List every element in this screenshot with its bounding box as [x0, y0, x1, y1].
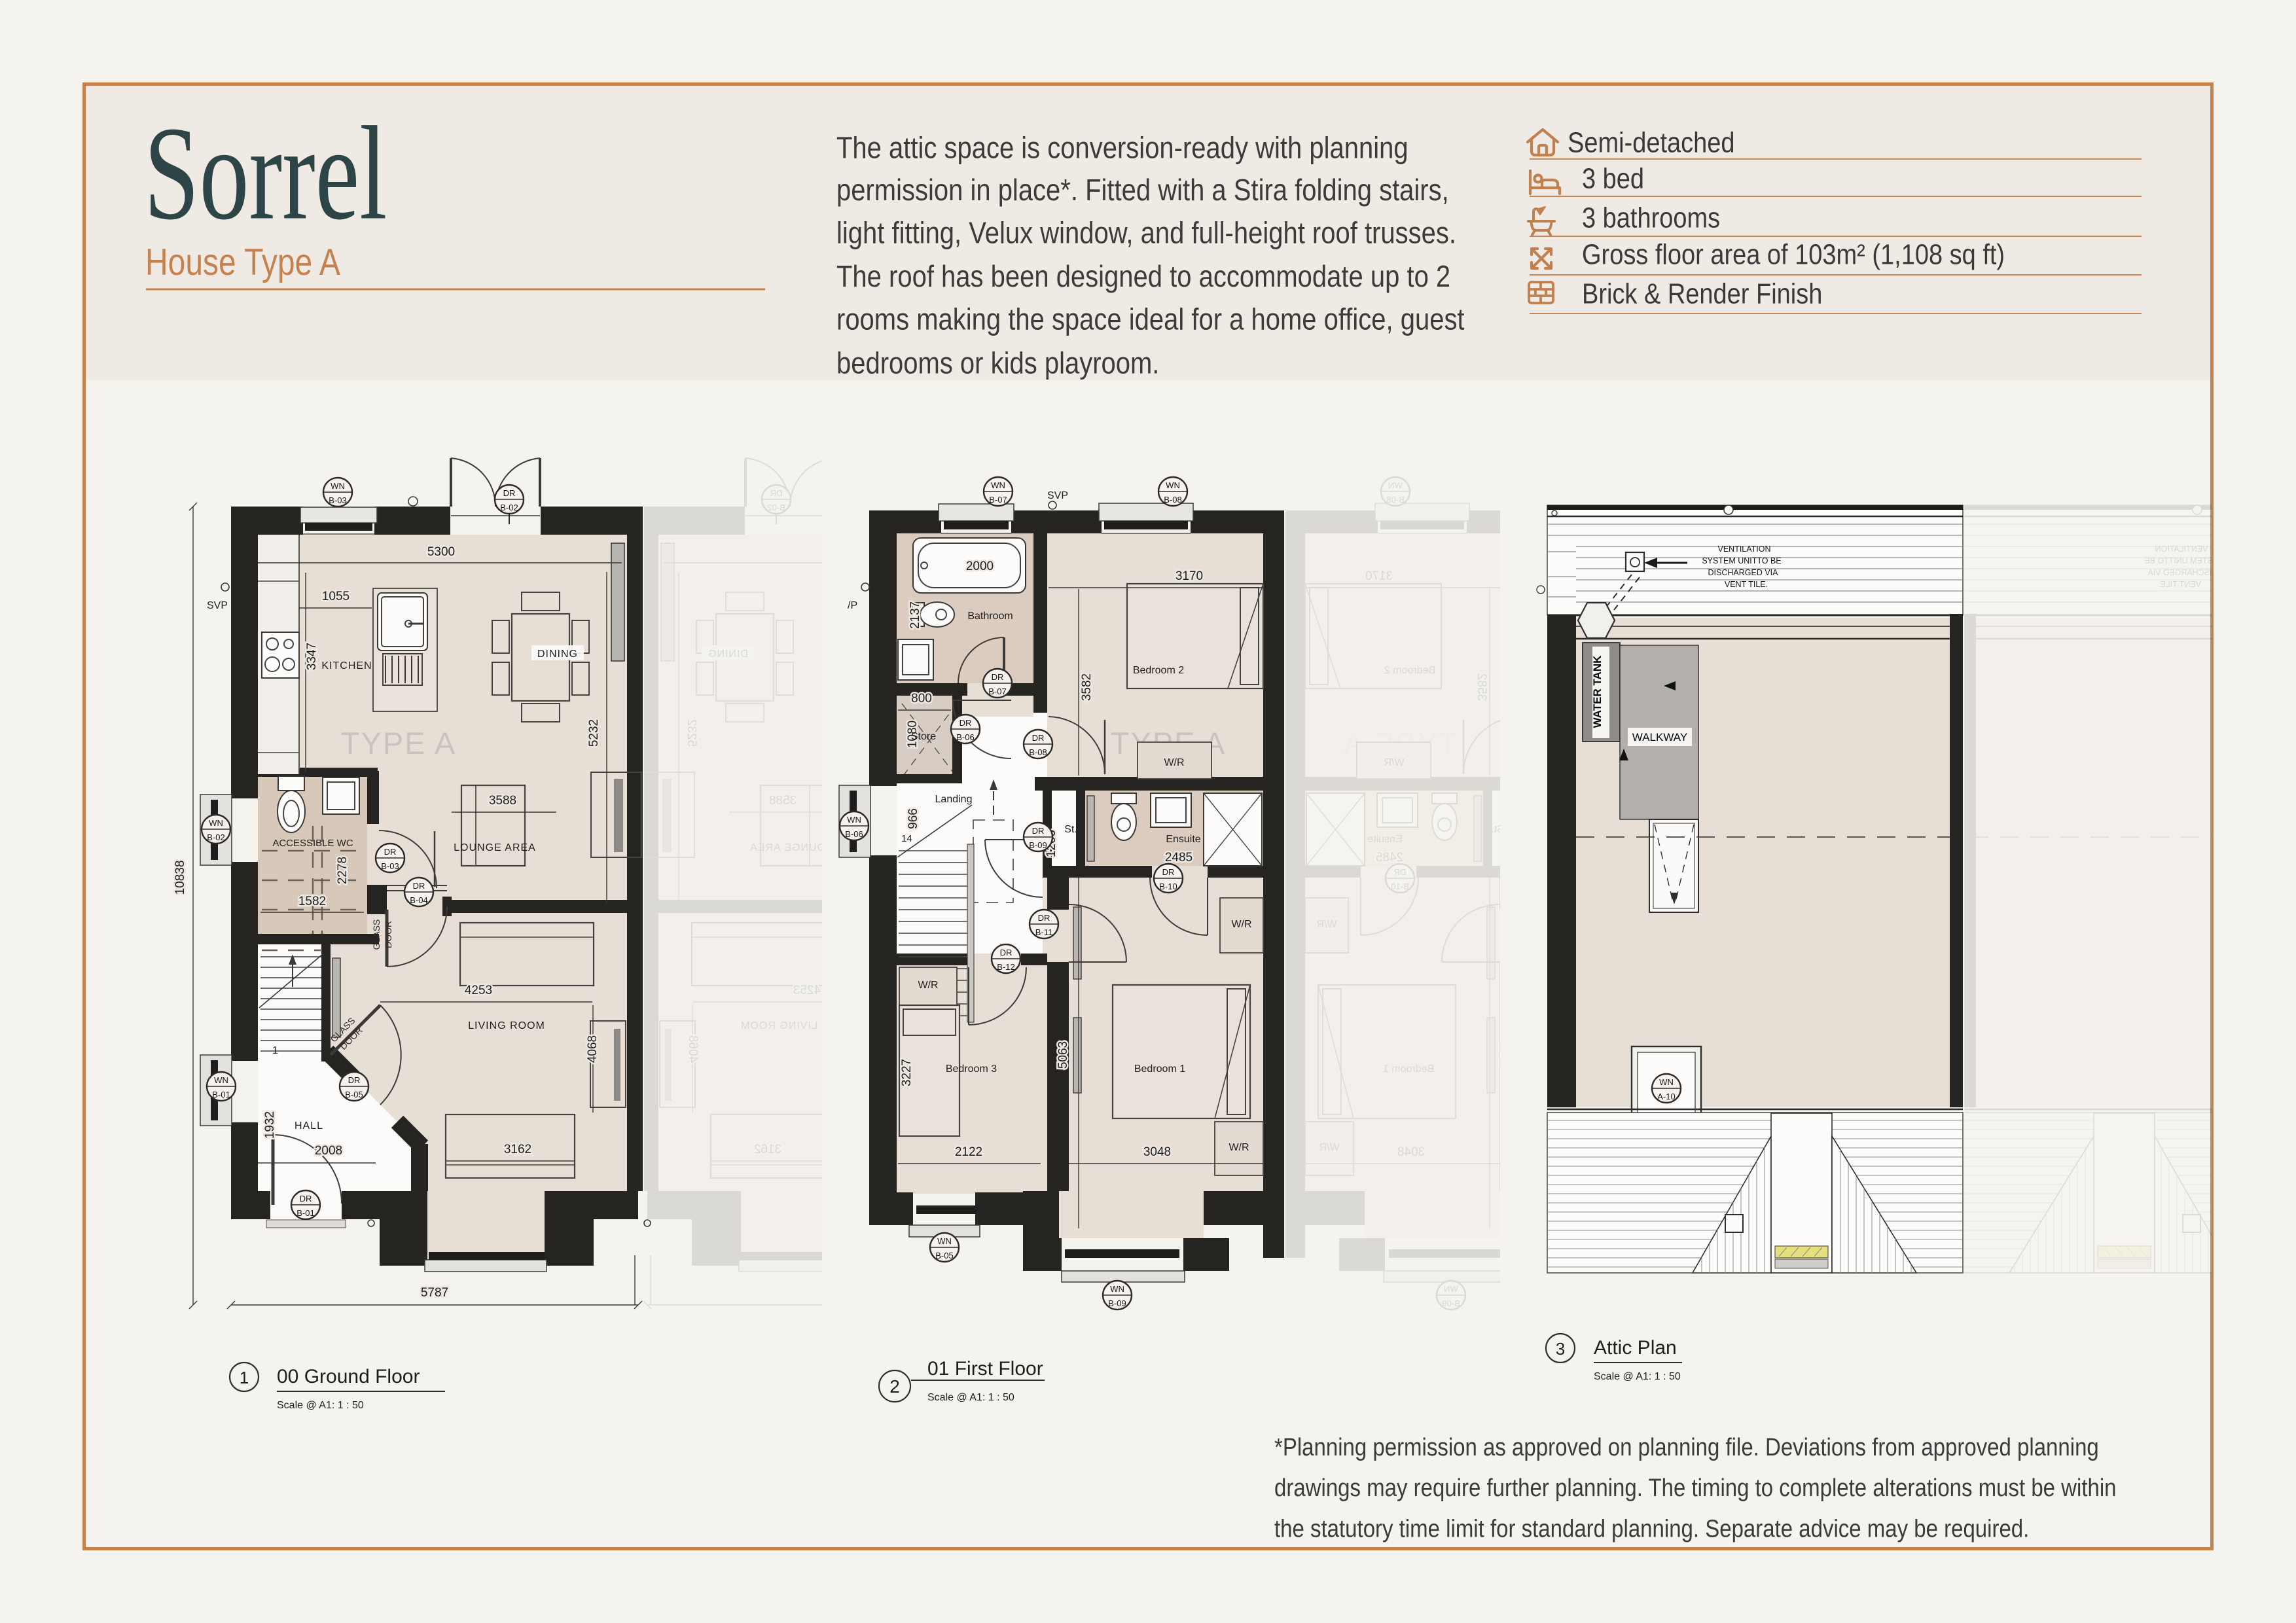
svg-text:DR: DR: [960, 718, 972, 728]
svg-text:B-05: B-05: [345, 1090, 363, 1099]
svg-text:2278: 2278: [336, 857, 350, 884]
svg-text:DR: DR: [384, 847, 397, 857]
svg-text:1932: 1932: [263, 1111, 277, 1139]
svg-text:DR: DR: [1162, 867, 1175, 877]
svg-text:WN: WN: [331, 481, 345, 491]
svg-text:Bedroom 1: Bedroom 1: [1134, 1063, 1185, 1075]
svg-text:DOOR: DOOR: [383, 921, 393, 948]
svg-text:KITCHEN: KITCHEN: [321, 660, 372, 671]
svg-text:10838: 10838: [173, 861, 187, 895]
svg-text:WN: WN: [847, 815, 861, 825]
svg-text:DR: DR: [413, 881, 425, 891]
svg-text:drawings may require further p: drawings may require further planning. T…: [1274, 1474, 2117, 1502]
svg-text:3048: 3048: [1143, 1145, 1171, 1159]
svg-text:3162: 3162: [504, 1143, 531, 1156]
svg-text:The attic space is conversion-: The attic space is conversion-ready with…: [836, 132, 1408, 165]
svg-text:DR: DR: [503, 488, 516, 498]
svg-text:WALKWAY: WALKWAY: [1632, 731, 1687, 743]
svg-text:rooms making the space ideal f: rooms making the space ideal for a home …: [836, 303, 1465, 336]
svg-text:4253: 4253: [465, 984, 492, 997]
svg-text:DR: DR: [348, 1075, 361, 1085]
svg-text:B-01: B-01: [212, 1090, 230, 1099]
svg-text:DR: DR: [1000, 948, 1013, 957]
svg-text:LOUNGE AREA: LOUNGE AREA: [454, 842, 536, 853]
svg-text:5787: 5787: [421, 1286, 448, 1300]
svg-text:B-10: B-10: [1159, 882, 1177, 891]
svg-text:W/R: W/R: [1164, 757, 1184, 768]
svg-text:WN: WN: [991, 480, 1005, 490]
svg-text:5232: 5232: [587, 719, 601, 747]
svg-text:B-06: B-06: [845, 829, 863, 839]
svg-text:permission in place*. Fitted w: permission in place*. Fitted with a Stir…: [836, 173, 1449, 207]
svg-text:2485: 2485: [1165, 851, 1193, 865]
svg-text:Store: Store: [911, 731, 936, 742]
svg-text:WN: WN: [937, 1236, 952, 1246]
svg-text:B-07: B-07: [988, 687, 1006, 696]
svg-text:/P: /P: [848, 600, 857, 611]
svg-text:SYSTEM UNITTO BE: SYSTEM UNITTO BE: [1702, 556, 1781, 565]
svg-text:Bathroom: Bathroom: [967, 611, 1013, 622]
svg-text:2008: 2008: [315, 1144, 342, 1158]
svg-text:B-04: B-04: [410, 895, 427, 905]
svg-text:Bedroom 2: Bedroom 2: [1133, 665, 1184, 676]
svg-text:1582: 1582: [298, 895, 326, 908]
svg-text:B-03: B-03: [329, 495, 346, 505]
svg-text:The roof has been designed to: The roof has been designed to accommodat…: [836, 260, 1450, 294]
svg-text:B-02: B-02: [207, 832, 224, 842]
svg-text:GLASS: GLASS: [371, 919, 382, 950]
svg-text:ACCESSIBLE WC: ACCESSIBLE WC: [272, 838, 353, 849]
svg-text:3582: 3582: [1080, 673, 1094, 701]
svg-text:2000: 2000: [966, 560, 994, 573]
svg-text:WN: WN: [209, 818, 223, 828]
svg-text:SVP: SVP: [207, 600, 228, 611]
svg-text:St.: St.: [1064, 824, 1077, 835]
svg-text:3: 3: [1556, 1339, 1565, 1359]
svg-text:DISCHARGED VIA: DISCHARGED VIA: [1708, 568, 1779, 577]
svg-text:HALL: HALL: [295, 1120, 323, 1132]
svg-text:B-01: B-01: [296, 1208, 314, 1218]
svg-text:W/R: W/R: [1231, 919, 1251, 930]
svg-text:966: 966: [906, 808, 920, 829]
svg-text:bedrooms or kids playroom.: bedrooms or kids playroom.: [836, 347, 1159, 380]
svg-text:A-10: A-10: [1657, 1092, 1675, 1101]
svg-text:House Type A: House Type A: [145, 241, 340, 283]
svg-text:1: 1: [272, 1045, 278, 1056]
svg-text:B-12: B-12: [997, 962, 1014, 972]
svg-text:Semi-detached: Semi-detached: [1568, 126, 1735, 158]
svg-text:800: 800: [911, 692, 932, 705]
svg-text:00 Ground Floor: 00 Ground Floor: [277, 1366, 420, 1387]
svg-text:VENT TILE.: VENT TILE.: [1725, 580, 1768, 589]
svg-text:B-09: B-09: [1108, 1298, 1126, 1308]
svg-text:DINING: DINING: [537, 649, 578, 660]
svg-text:DR: DR: [1032, 733, 1045, 743]
svg-text:3 bathrooms: 3 bathrooms: [1582, 202, 1720, 234]
svg-text:B-06: B-06: [956, 732, 974, 742]
svg-text:Landing: Landing: [935, 794, 973, 805]
svg-text:4068: 4068: [586, 1035, 600, 1063]
svg-text:WN: WN: [1659, 1077, 1674, 1087]
svg-text:B-05: B-05: [935, 1251, 953, 1260]
svg-text:B-08: B-08: [1164, 495, 1181, 505]
svg-text:*Planning permission as approv: *Planning permission as approved on plan…: [1274, 1433, 2099, 1461]
svg-text:2122: 2122: [955, 1145, 982, 1159]
svg-text:5063: 5063: [1056, 1041, 1070, 1069]
svg-text:Sorrel: Sorrel: [144, 99, 387, 248]
svg-text:DR: DR: [300, 1194, 312, 1204]
svg-text:3 bed: 3 bed: [1582, 162, 1644, 194]
svg-text:WN: WN: [214, 1075, 228, 1085]
svg-text:B-08: B-08: [1029, 747, 1047, 757]
svg-text:LIVING ROOM: LIVING ROOM: [468, 1020, 545, 1031]
svg-text:Bedroom 3: Bedroom 3: [946, 1063, 997, 1075]
svg-text:Scale @ A1: 1 : 50: Scale @ A1: 1 : 50: [277, 1400, 364, 1411]
svg-text:SVP: SVP: [1047, 490, 1068, 501]
svg-text:1055: 1055: [322, 590, 350, 603]
svg-text:Brick & Render Finish: Brick & Render Finish: [1582, 277, 1822, 310]
svg-text:B-09: B-09: [1029, 840, 1047, 850]
svg-text:W/R: W/R: [918, 980, 938, 991]
svg-text:Ensuite: Ensuite: [1166, 834, 1200, 845]
svg-text:B-03: B-03: [381, 861, 399, 871]
svg-text:DR: DR: [992, 672, 1004, 682]
svg-text:WATER TANK: WATER TANK: [1591, 655, 1604, 728]
svg-text:W/R: W/R: [1229, 1142, 1249, 1153]
svg-text:Attic Plan: Attic Plan: [1594, 1337, 1677, 1359]
svg-text:TYPE A: TYPE A: [341, 726, 457, 760]
svg-text:3347: 3347: [305, 643, 319, 670]
svg-text:light fitting, Velux window, a: light fitting, Velux window, and full-he…: [836, 217, 1456, 250]
svg-text:Scale @ A1: 1 : 50: Scale @ A1: 1 : 50: [927, 1392, 1014, 1403]
svg-text:Gross floor area of 103m² (1,1: Gross floor area of 103m² (1,108 sq ft): [1582, 238, 2005, 270]
svg-text:Scale @ A1: 1 : 50: Scale @ A1: 1 : 50: [1594, 1371, 1681, 1382]
svg-text:2137: 2137: [908, 601, 922, 629]
svg-text:B-02: B-02: [500, 503, 518, 512]
svg-text:WN: WN: [1110, 1284, 1124, 1294]
svg-text:5300: 5300: [427, 545, 455, 559]
svg-text:3170: 3170: [1175, 569, 1203, 583]
svg-text:3588: 3588: [489, 794, 516, 808]
svg-text:VENTILATION: VENTILATION: [1717, 544, 1770, 554]
svg-text:the statutory time limit for s: the statutory time limit for standard pl…: [1274, 1514, 2029, 1543]
svg-text:01 First Floor: 01 First Floor: [927, 1358, 1043, 1380]
svg-text:B-07: B-07: [989, 495, 1007, 505]
svg-text:1: 1: [240, 1368, 249, 1387]
svg-text:WN: WN: [1166, 480, 1180, 490]
svg-text:DR: DR: [1038, 913, 1050, 923]
svg-text:3227: 3227: [900, 1059, 914, 1086]
svg-text:DR: DR: [1032, 826, 1045, 836]
svg-text:B-11: B-11: [1035, 927, 1053, 937]
svg-text:14: 14: [901, 833, 912, 844]
svg-text:2: 2: [889, 1376, 900, 1397]
